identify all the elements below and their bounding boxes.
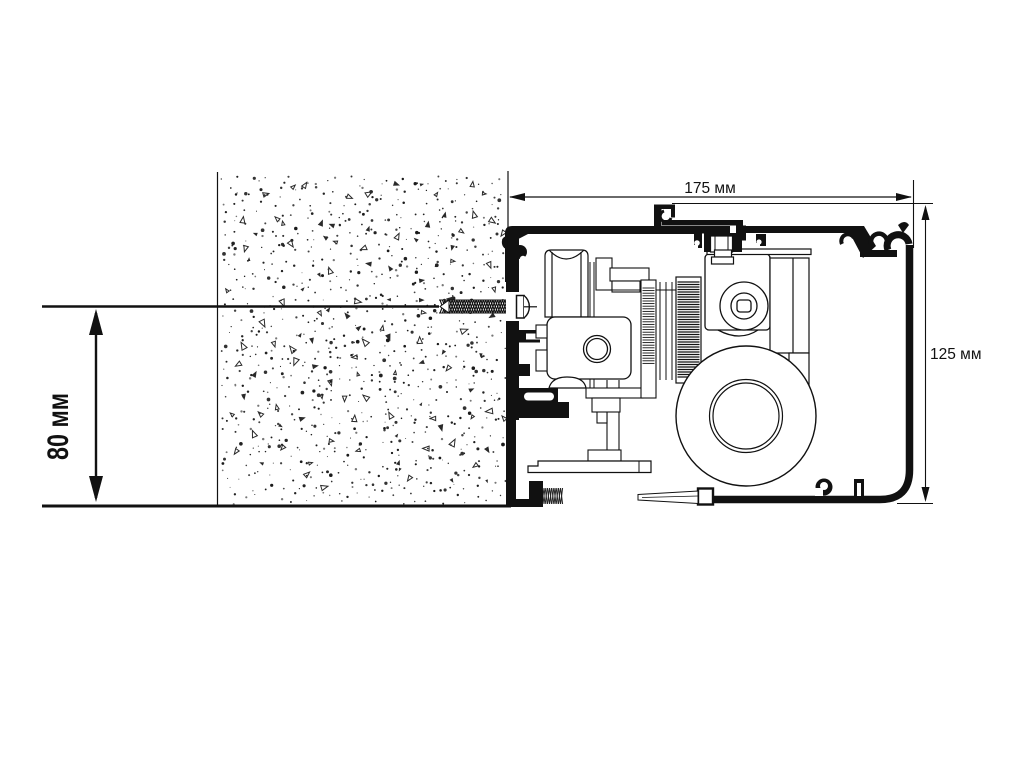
svg-text:80 мм: 80 мм <box>42 393 75 460</box>
svg-text:125 мм: 125 мм <box>930 346 981 363</box>
svg-text:175 мм: 175 мм <box>684 180 735 197</box>
